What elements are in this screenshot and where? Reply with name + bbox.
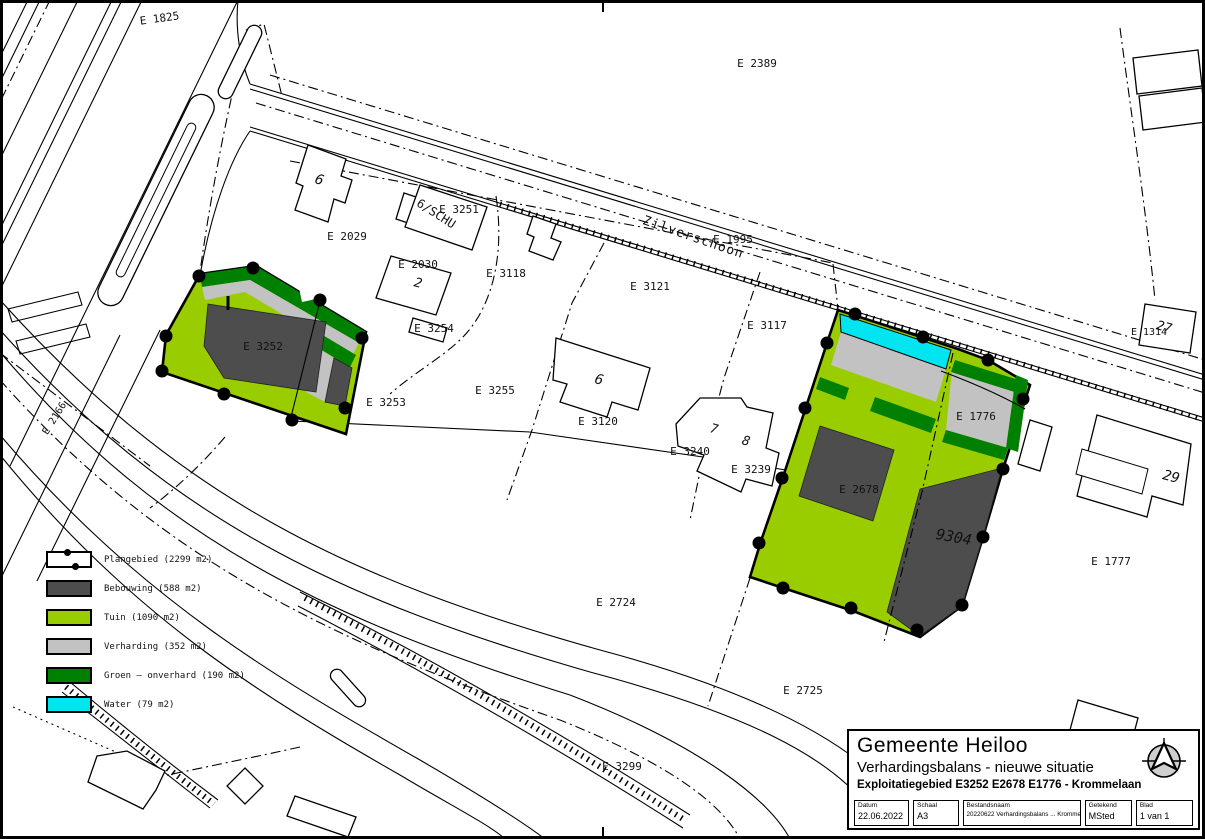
- title-field-getekend: GetekendMSted: [1085, 800, 1132, 826]
- parcel-label: E 3252: [243, 340, 283, 353]
- parcel-label: E 1314: [1131, 327, 1167, 338]
- plangebied-vertex-dot: [72, 563, 79, 570]
- parcel-label: E 3121: [630, 280, 670, 293]
- legend-item-groen: Groen – onverhard (190 m2): [46, 667, 245, 684]
- title-field-schaal: SchaalA3: [913, 800, 958, 826]
- title-block: Gemeente Heiloo Verhardingsbalans - nieu…: [847, 729, 1200, 830]
- field-value: 20220622 Verhardingsbalans ... Krommelaa…: [967, 811, 1077, 818]
- parcel-label: E 1776: [956, 410, 996, 423]
- parcel-label: E 1777: [1091, 555, 1131, 568]
- parcel-label: E 2389: [737, 57, 777, 70]
- parcel-label: E 3254: [414, 322, 454, 335]
- parcel-label: E 3117: [747, 319, 787, 332]
- parcel-label: E 3240: [670, 445, 710, 458]
- plangebied-vertex-dot: [64, 549, 71, 556]
- legend-label: Verharding (352 m2): [104, 642, 207, 652]
- legend-item-tuin: Tuin (1090 m2): [46, 609, 245, 626]
- parcel-label: E 3251: [439, 203, 479, 216]
- field-label: Schaal: [917, 802, 954, 809]
- legend-item-verharding: Verharding (352 m2): [46, 638, 245, 655]
- legend-label: Water (79 m2): [104, 700, 174, 710]
- legend-swatch-water: [46, 696, 92, 713]
- legend-swatch-bebouwing: [46, 580, 92, 597]
- parcel-label: E 3239: [731, 463, 771, 476]
- buildings: [88, 50, 1205, 837]
- parcel-label: E 2029: [327, 230, 367, 243]
- parcel-label: E 1995: [713, 233, 753, 246]
- legend-swatch-verharding: [46, 638, 92, 655]
- legend: Plangebied (2299 m2)Bebouwing (588 m2)Tu…: [46, 551, 245, 725]
- legend-item-plangebied: Plangebied (2299 m2): [46, 551, 245, 568]
- legend-swatch-tuin: [46, 609, 92, 626]
- field-value: A3: [917, 811, 954, 821]
- field-value: 22.06.2022: [858, 811, 905, 821]
- parcel-label: E 2030: [398, 258, 438, 271]
- parcel-label: E 3118: [486, 267, 526, 280]
- parcel-label: E 1825: [139, 9, 180, 27]
- title-field-bestandsnaam: Bestandsnaam20220622 Verhardingsbalans .…: [963, 800, 1081, 826]
- field-value: MSted: [1089, 811, 1128, 821]
- legend-swatch-plangebied: [46, 551, 92, 568]
- field-label: Bestandsnaam: [967, 802, 1077, 809]
- legend-swatch-groen: [46, 667, 92, 684]
- legend-item-water: Water (79 m2): [46, 696, 245, 713]
- parcel-label: E 3299: [602, 760, 642, 773]
- field-value: 1 van 1: [1140, 811, 1189, 821]
- title-field-blad: Blad1 van 1: [1136, 800, 1193, 826]
- parcel-label: E 3255: [475, 384, 515, 397]
- legend-label: Groen – onverhard (190 m2): [104, 671, 245, 681]
- parcel-label: E 2724: [596, 596, 636, 609]
- legend-label: Plangebied (2299 m2): [104, 555, 212, 565]
- north-arrow-icon: [1138, 735, 1190, 787]
- field-label: Blad: [1140, 802, 1189, 809]
- title-fields: Datum22.06.2022SchaalA3Bestandsnaam20220…: [849, 796, 1198, 826]
- cyclepath-hatch: [305, 598, 686, 821]
- title-field-datum: Datum22.06.2022: [854, 800, 909, 826]
- legend-item-bebouwing: Bebouwing (588 m2): [46, 580, 245, 597]
- legend-label: Bebouwing (588 m2): [104, 584, 202, 594]
- legend-items: Plangebied (2299 m2)Bebouwing (588 m2)Tu…: [46, 551, 245, 713]
- parcel-label: E 2725: [783, 684, 823, 697]
- field-label: Datum: [858, 802, 905, 809]
- plan-drawing-page: E 1825E 23896E 20296/SCHUE 3251E 20302E …: [0, 0, 1205, 839]
- parcel-label: E 2678: [839, 483, 879, 496]
- parcel-label: E 2166: [41, 400, 69, 436]
- field-label: Getekend: [1089, 802, 1128, 809]
- title-block-header: Gemeente Heiloo Verhardingsbalans - nieu…: [849, 731, 1198, 796]
- parcel-label: E 3253: [366, 396, 406, 409]
- parcel-label: E 3120: [578, 415, 618, 428]
- legend-label: Tuin (1090 m2): [104, 613, 180, 623]
